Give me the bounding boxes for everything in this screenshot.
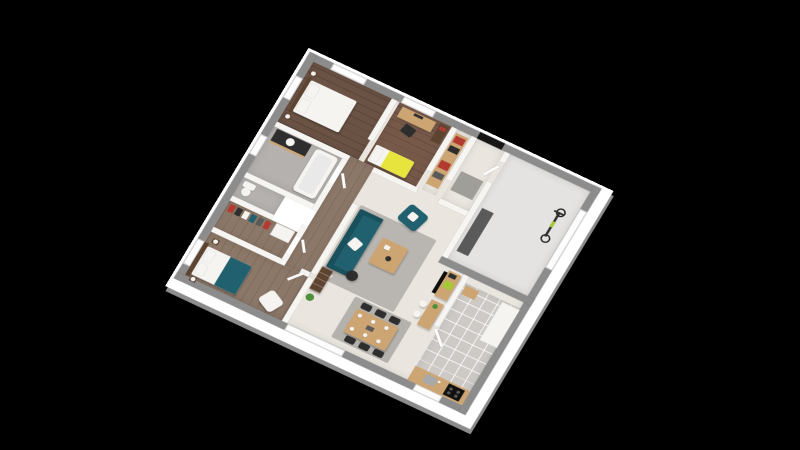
floorplan-3d [174,52,602,415]
bike-seat [549,221,555,228]
floorplan-stage [0,0,800,450]
